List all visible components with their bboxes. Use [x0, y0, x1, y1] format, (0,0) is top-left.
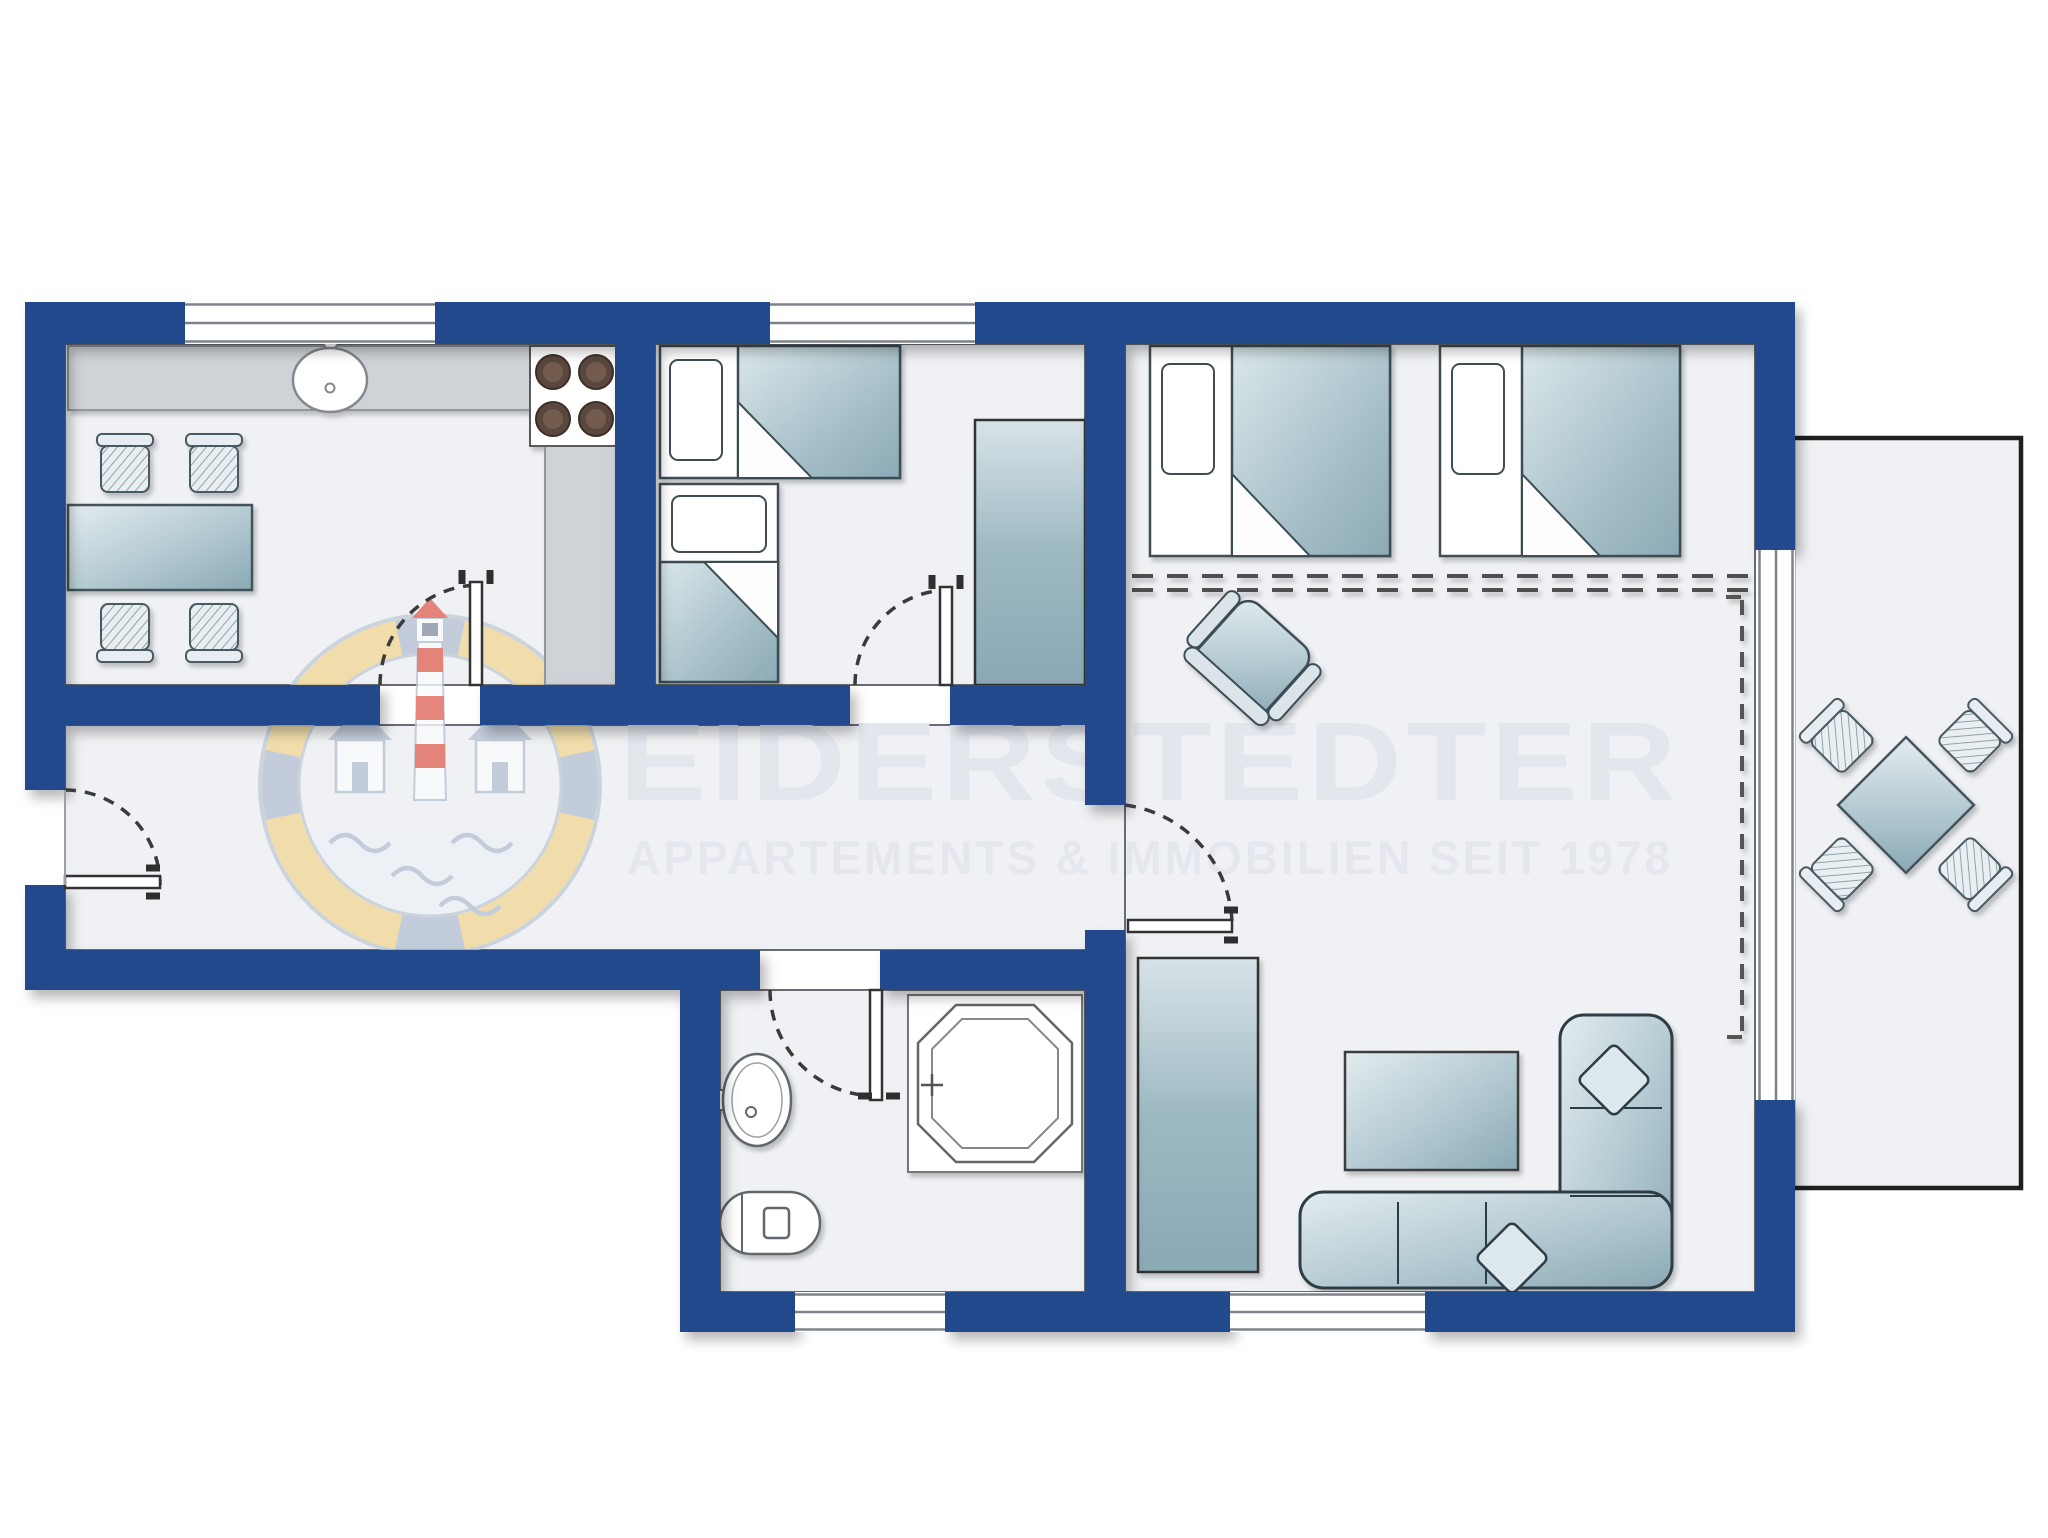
lighthouse-icon [412, 598, 448, 800]
chair-icon [186, 604, 242, 662]
window-icon [1230, 1292, 1425, 1332]
bed-icon [1150, 346, 1390, 556]
watermark-subtitle: APPARTEMENTS & IMMOBILIEN SEIT 1978 [627, 831, 1673, 884]
pillow-icon [1162, 364, 1214, 474]
toilet-icon [720, 1192, 820, 1254]
bed-icon [660, 484, 778, 682]
watermark-text: EIDERSTEDTER APPARTEMENTS & IMMOBILIEN S… [619, 699, 1681, 884]
window-icon [770, 302, 975, 344]
shower-icon [908, 995, 1082, 1172]
kitchen-counter-icon [545, 446, 616, 685]
coffee-table-icon [1345, 1052, 1518, 1170]
dining-table-icon [68, 505, 252, 590]
wardrobe-icon [975, 420, 1085, 685]
pillow-icon [1452, 364, 1504, 474]
pillow-icon [670, 360, 722, 460]
chair-icon [186, 434, 242, 492]
bed-icon [1440, 346, 1680, 556]
stove-burners-icon [530, 346, 616, 446]
window-icon [795, 1292, 945, 1332]
window-icon [185, 302, 435, 344]
sliding-window-icon [1757, 550, 1795, 1100]
wardrobe-icon [1138, 958, 1258, 1272]
floor-plan: EIDERSTEDTER APPARTEMENTS & IMMOBILIEN S… [0, 0, 2048, 1538]
chair-icon [97, 434, 153, 492]
bed-icon [660, 346, 900, 478]
floor-plan-page: EIDERSTEDTER APPARTEMENTS & IMMOBILIEN S… [0, 0, 2048, 1538]
chair-icon [97, 604, 153, 662]
pillow-icon [672, 496, 766, 552]
